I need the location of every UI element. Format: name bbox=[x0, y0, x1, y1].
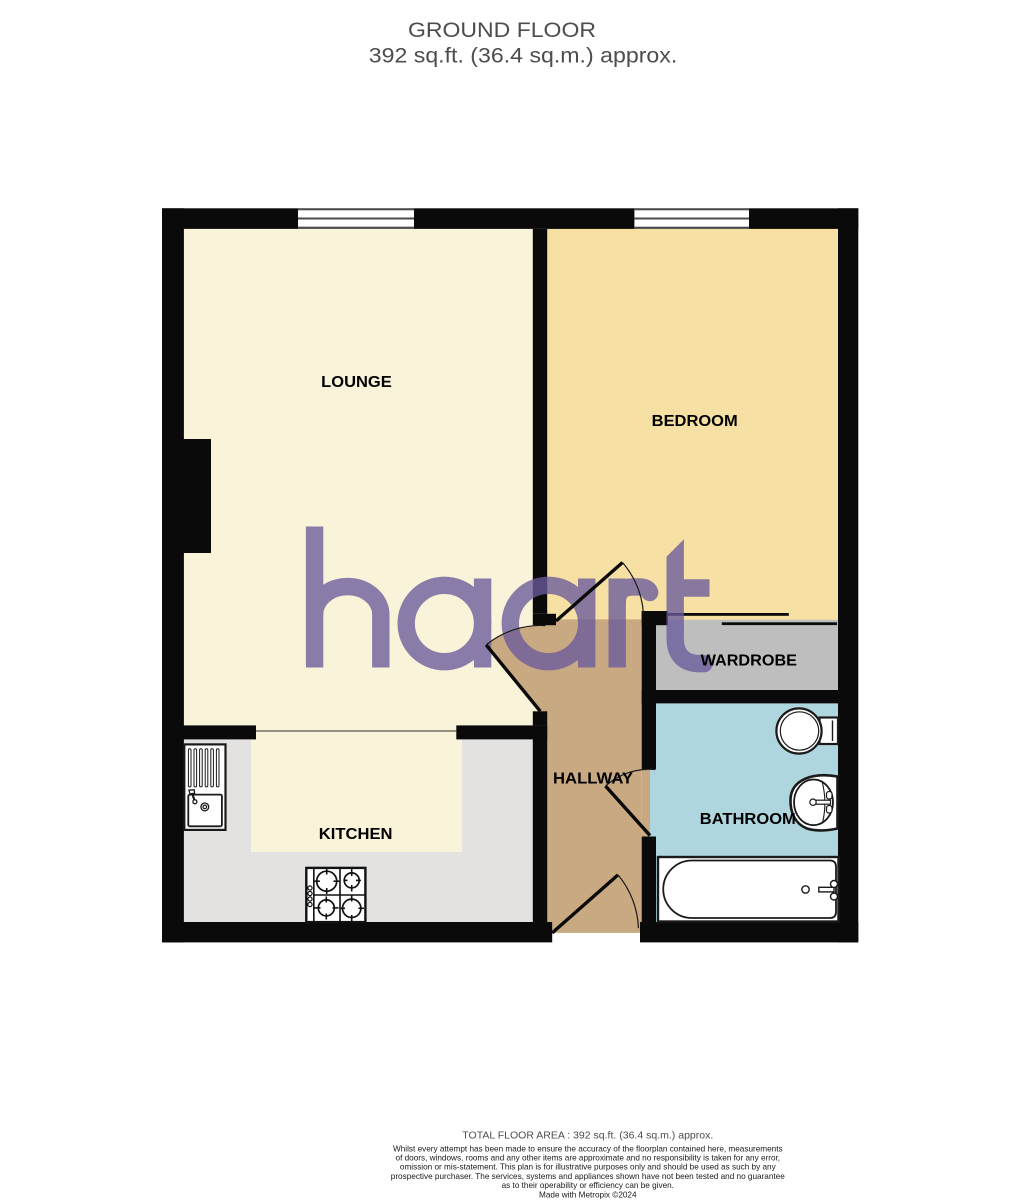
svg-text:omission or mis-statement. Thi: omission or mis-statement. This plan is … bbox=[400, 1163, 777, 1172]
svg-text:BATHROOM: BATHROOM bbox=[700, 811, 796, 828]
svg-text:HALLWAY: HALLWAY bbox=[553, 771, 633, 788]
svg-text:BEDROOM: BEDROOM bbox=[652, 413, 738, 430]
svg-text:Made with Metropix ©2024: Made with Metropix ©2024 bbox=[539, 1190, 637, 1199]
svg-text:prospective purchaser. The ser: prospective purchaser. The services, sys… bbox=[391, 1172, 785, 1181]
svg-text:as to their operability or eff: as to their operability or efficiency ca… bbox=[502, 1181, 674, 1190]
svg-text:of doors, windows, rooms and a: of doors, windows, rooms and any other i… bbox=[396, 1154, 781, 1163]
svg-text:KITCHEN: KITCHEN bbox=[319, 826, 393, 843]
svg-text:Whilst every attempt has been: Whilst every attempt has been made to en… bbox=[393, 1144, 783, 1153]
svg-text:392 sq.ft. (36.4 sq.m.) approx: 392 sq.ft. (36.4 sq.m.) approx. bbox=[369, 45, 678, 68]
svg-text:LOUNGE: LOUNGE bbox=[321, 374, 392, 391]
svg-text:GROUND FLOOR: GROUND FLOOR bbox=[408, 19, 596, 42]
svg-text:TOTAL FLOOR AREA : 392 sq.ft.: TOTAL FLOOR AREA : 392 sq.ft. (36.4 sq.m… bbox=[462, 1130, 713, 1141]
svg-text:WARDROBE: WARDROBE bbox=[701, 652, 798, 669]
